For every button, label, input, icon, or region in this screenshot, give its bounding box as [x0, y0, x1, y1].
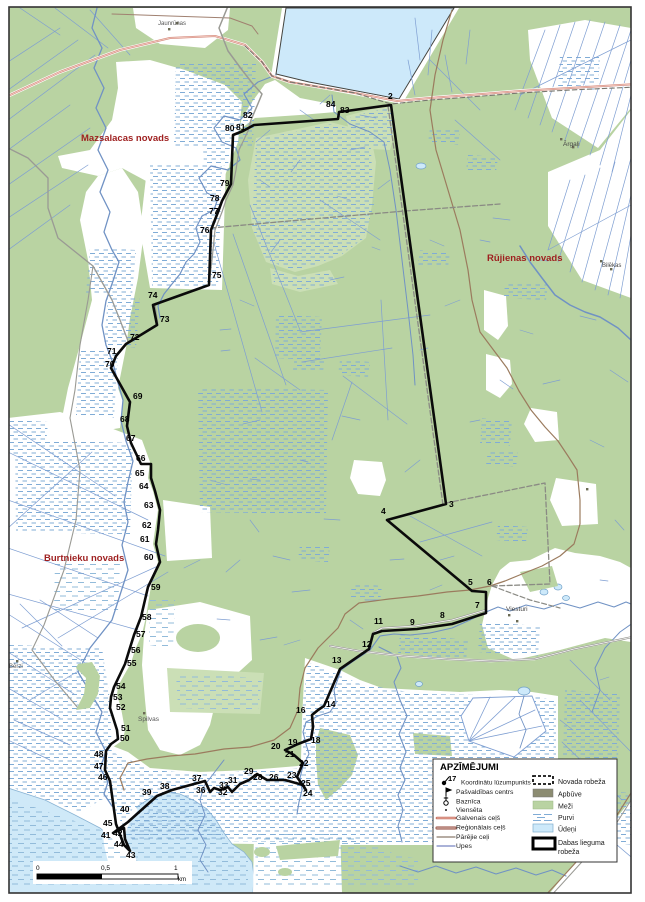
- svg-text:52: 52: [116, 702, 126, 712]
- svg-text:55: 55: [127, 658, 137, 668]
- svg-text:70: 70: [105, 359, 115, 369]
- svg-text:Upes: Upes: [456, 843, 472, 850]
- svg-text:84: 84: [326, 99, 336, 109]
- svg-text:50: 50: [120, 733, 130, 743]
- svg-text:48: 48: [94, 749, 104, 759]
- svg-text:3: 3: [449, 499, 454, 509]
- svg-text:23: 23: [287, 770, 297, 780]
- svg-text:82: 82: [243, 110, 253, 120]
- svg-text:4: 4: [381, 506, 386, 516]
- svg-text:Pārējie ceļi: Pārējie ceļi: [456, 834, 490, 841]
- svg-text:37: 37: [192, 773, 202, 783]
- svg-text:Viensēta: Viensēta: [456, 807, 483, 814]
- svg-text:12: 12: [362, 639, 372, 649]
- svg-text:60: 60: [144, 552, 154, 562]
- svg-text:47: 47: [94, 761, 104, 771]
- svg-text:72: 72: [130, 332, 140, 342]
- svg-text:68: 68: [120, 414, 130, 424]
- svg-text:58: 58: [142, 612, 152, 622]
- svg-text:Galvenais ceļš: Galvenais ceļš: [456, 815, 501, 822]
- svg-text:36: 36: [196, 785, 206, 795]
- svg-text:13: 13: [332, 655, 342, 665]
- svg-text:64: 64: [139, 481, 149, 491]
- svg-text:80: 80: [225, 123, 235, 133]
- svg-text:Reģionālais ceļš: Reģionālais ceļš: [456, 824, 506, 832]
- svg-text:Bilēkas: Bilēkas: [602, 263, 621, 269]
- svg-text:robeža: robeža: [558, 849, 580, 856]
- svg-text:83: 83: [340, 105, 350, 115]
- svg-text:APZĪMĒJUMI: APZĪMĒJUMI: [440, 762, 499, 773]
- svg-text:41: 41: [101, 830, 111, 840]
- svg-text:69: 69: [133, 391, 143, 401]
- svg-text:54: 54: [116, 681, 126, 691]
- svg-text:74: 74: [148, 290, 158, 300]
- svg-text:39: 39: [142, 787, 152, 797]
- svg-text:Rūjienas novads: Rūjienas novads: [487, 253, 563, 264]
- svg-text:Ūdeņi: Ūdeņi: [558, 826, 577, 834]
- svg-text:33: 33: [219, 780, 229, 790]
- svg-text:Spilvas: Spilvas: [138, 716, 160, 723]
- svg-text:29: 29: [244, 766, 254, 776]
- svg-text:1: 1: [174, 865, 178, 872]
- svg-text:26: 26: [269, 772, 279, 782]
- svg-text:11: 11: [374, 616, 383, 626]
- svg-text:53: 53: [113, 692, 123, 702]
- svg-text:Pašvaldības centrs: Pašvaldības centrs: [456, 789, 514, 796]
- svg-text:28: 28: [253, 772, 263, 782]
- svg-text:63: 63: [144, 500, 154, 510]
- svg-text:7: 7: [475, 600, 480, 610]
- svg-text:59: 59: [151, 582, 161, 592]
- svg-text:18: 18: [311, 735, 321, 745]
- svg-text:5: 5: [468, 577, 473, 587]
- svg-text:Viesturi: Viesturi: [506, 606, 528, 613]
- svg-text:42: 42: [113, 828, 123, 838]
- svg-text:79: 79: [220, 178, 230, 188]
- svg-text:56: 56: [131, 645, 141, 655]
- svg-text:38: 38: [160, 781, 170, 791]
- svg-text:57: 57: [136, 629, 146, 639]
- svg-text:0: 0: [36, 865, 40, 872]
- svg-text:24: 24: [303, 788, 313, 798]
- svg-text:Purvi: Purvi: [558, 815, 574, 822]
- svg-text:Mazsalacas novads: Mazsalacas novads: [81, 133, 169, 144]
- svg-text:2: 2: [388, 91, 393, 101]
- svg-text:20: 20: [271, 741, 281, 751]
- svg-text:81: 81: [236, 122, 246, 132]
- svg-text:62: 62: [142, 520, 152, 530]
- svg-text:46: 46: [98, 772, 108, 782]
- svg-text:16: 16: [296, 705, 306, 715]
- svg-text:8: 8: [440, 610, 445, 620]
- svg-text:Jaunrūnas: Jaunrūnas: [158, 21, 186, 27]
- svg-text:14: 14: [326, 699, 336, 709]
- svg-text:Burtnieku novads: Burtnieku novads: [44, 553, 124, 564]
- svg-text:67: 67: [126, 433, 136, 443]
- svg-text:19: 19: [288, 737, 298, 747]
- svg-text:0,5: 0,5: [101, 865, 110, 872]
- svg-text:21: 21: [285, 749, 295, 759]
- svg-text:45: 45: [103, 818, 113, 828]
- svg-text:66: 66: [136, 453, 146, 463]
- svg-text:65: 65: [135, 468, 145, 478]
- svg-text:17: 17: [448, 774, 456, 783]
- svg-text:Koordinātu lūzumpunkts: Koordinātu lūzumpunkts: [461, 780, 531, 787]
- svg-text:40: 40: [120, 804, 130, 814]
- svg-text:Meži: Meži: [558, 804, 573, 811]
- svg-text:9: 9: [410, 617, 415, 627]
- svg-text:51: 51: [121, 723, 131, 733]
- svg-text:71: 71: [107, 346, 117, 356]
- svg-text:44: 44: [114, 839, 124, 849]
- svg-text:Dabas lieguma: Dabas lieguma: [558, 840, 605, 847]
- svg-text:75: 75: [212, 270, 222, 280]
- svg-text:31: 31: [228, 775, 238, 785]
- svg-text:Novada robeža: Novada robeža: [558, 779, 606, 786]
- svg-text:43: 43: [126, 850, 136, 860]
- svg-text:Ārgaļi: Ārgaļi: [563, 140, 580, 148]
- svg-text:76: 76: [200, 225, 210, 235]
- svg-text:78: 78: [210, 193, 220, 203]
- svg-text:km: km: [178, 877, 186, 883]
- svg-text:25: 25: [301, 778, 311, 788]
- svg-text:73: 73: [160, 314, 170, 324]
- svg-text:61: 61: [140, 534, 150, 544]
- svg-text:Apbūve: Apbūve: [558, 792, 582, 799]
- svg-text:77: 77: [209, 206, 219, 216]
- svg-text:22: 22: [299, 758, 309, 768]
- svg-text:Baznīca: Baznīca: [456, 799, 481, 806]
- svg-text:6: 6: [487, 577, 492, 587]
- svg-text:Bērzi: Bērzi: [9, 664, 23, 670]
